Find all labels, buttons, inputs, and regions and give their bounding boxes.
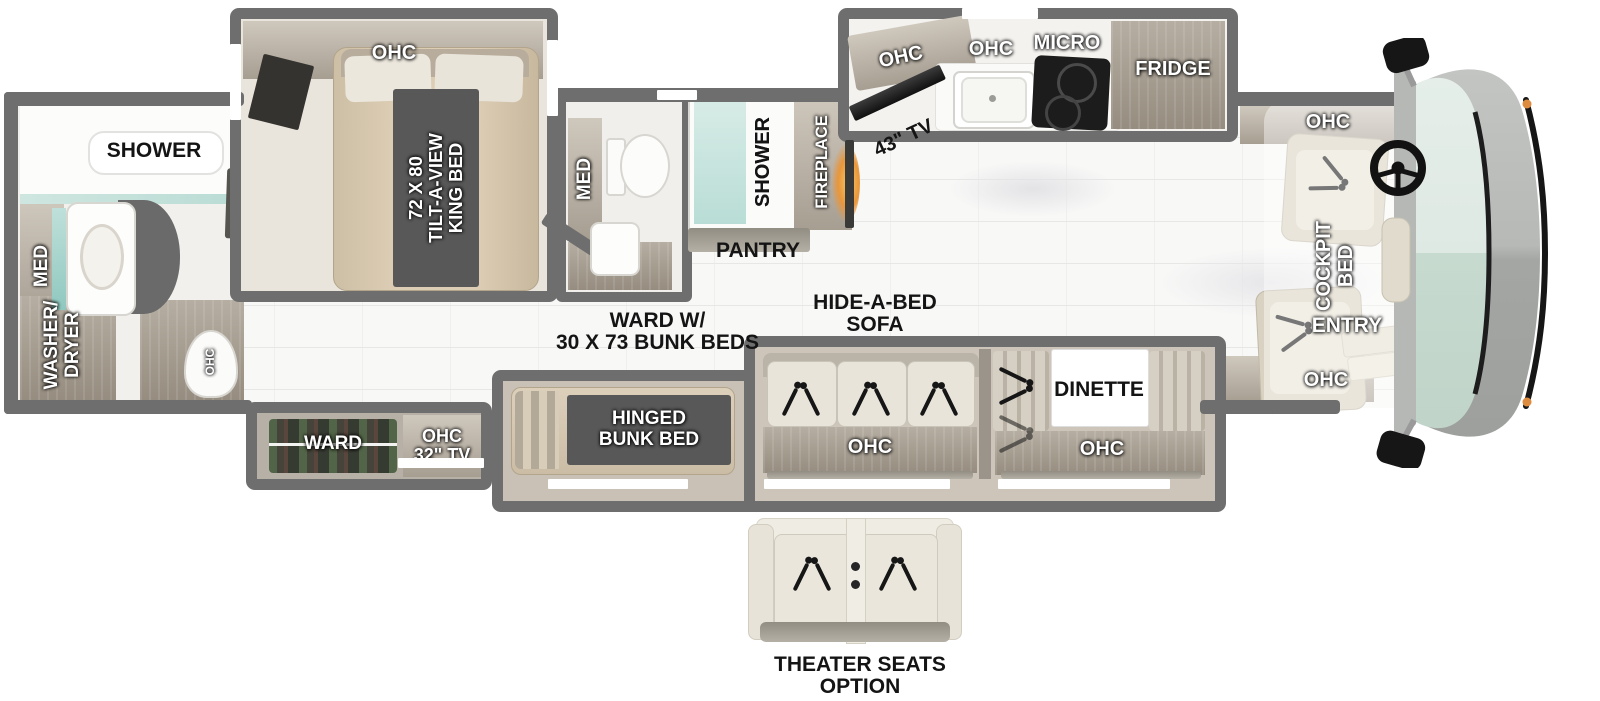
bunk-slideout: HINGED BUNK BED: [492, 370, 768, 512]
bedroom-slideout: OHC 72 X 80 TILT-A-VIEW KING BED: [230, 8, 558, 302]
kitchen-sink-drain: [989, 95, 996, 102]
ward-slideout: WARD OHC 32" TV: [246, 402, 492, 490]
pantry-label: PANTRY: [703, 238, 813, 264]
bunk-slide-window: [548, 479, 688, 489]
slide-divider-post: [979, 349, 991, 479]
kitchen-slideout: OHC OHC MICRO FRIDGE: [838, 8, 1238, 142]
marker-light-bottom: [1523, 398, 1532, 407]
seat-belt-icon: [779, 379, 823, 421]
theater-front-shadow: [760, 622, 950, 642]
sofa-ohc-label: OHC: [839, 435, 901, 461]
rear-shower-label: SHOWER: [88, 133, 220, 169]
theater-seats-label: THEATER SEATS OPTION: [765, 652, 955, 700]
mirror-icon-top: [1380, 38, 1431, 75]
mid-wall-window: [657, 90, 697, 100]
seat-belt-icon: [917, 379, 961, 421]
dinette-chair-right: [1149, 351, 1205, 431]
floorplan-canvas: SHOWER MED WASHER/ DRYER OHC OHC 72 X 80…: [0, 0, 1600, 701]
mid-shower-label-dark: SHOWER: [751, 100, 777, 224]
entry-label: ENTRY: [1306, 313, 1388, 339]
sofa-slide-window: [764, 479, 950, 489]
hinged-bunk-label: HINGED BUNK BED: [573, 405, 725, 455]
kitchen-window: [962, 8, 1038, 19]
theater-cupholder-1: [851, 562, 860, 571]
dinette-label: DINETTE: [1047, 377, 1151, 403]
mid-shower-glass: [694, 102, 746, 224]
fridge-label: FRIDGE: [1131, 57, 1215, 83]
mirror-icon-bottom: [1374, 428, 1427, 468]
kitchen-ohc-center-label: OHC: [959, 37, 1023, 63]
seat-belt-icon: [790, 554, 834, 596]
bedroom-window-left: [230, 44, 241, 120]
bedroom-ohc-label: OHC: [363, 41, 425, 67]
seat-belt-icon: [994, 364, 1036, 408]
washer-dryer-label: WASHER/ DRYER: [40, 284, 86, 406]
theater-cupholder-2: [851, 580, 860, 589]
marker-light-top: [1523, 100, 1532, 109]
hide-a-bed-label: HIDE-A-BED SOFA: [795, 290, 955, 338]
bedroom-window-right: [547, 40, 558, 116]
dash-console: [1382, 218, 1410, 302]
ward-slide-window: [398, 458, 484, 468]
cooktop-burner-2: [1045, 95, 1081, 131]
ward-label: WARD: [289, 431, 377, 457]
sofa-shadow: [767, 471, 973, 479]
seat-belt-icon: [876, 554, 920, 596]
dinette-slide-window: [998, 479, 1170, 489]
top-wall-mid: [552, 88, 844, 102]
mid-sink: [590, 222, 640, 276]
theater-seats-graphic: [748, 514, 962, 650]
dinette-shadow: [1001, 471, 1201, 479]
cockpit-ohc-bottom-label: OHC: [1294, 368, 1358, 394]
fireplace-label: FIREPLACE: [811, 97, 835, 227]
cockpit-ohc-top-label: OHC: [1296, 110, 1360, 136]
king-bed-label: 72 X 80 TILT-A-VIEW KING BED: [405, 98, 467, 278]
bottom-wall-front: [1200, 400, 1340, 414]
bunk-ladder: [515, 391, 559, 469]
top-wall-rear: [4, 92, 244, 106]
rear-sink-basin: [80, 224, 124, 290]
mid-med-label: MED: [573, 143, 597, 215]
kitchen-micro-label: MICRO: [1027, 31, 1107, 57]
mid-toilet: [620, 134, 670, 198]
seat-belt-icon: [849, 379, 893, 421]
fireplace-screen: [845, 140, 854, 228]
ward-bunks-label: WARD W/ 30 X 73 BUNK BEDS: [540, 308, 775, 356]
rear-toilet-ohc-label: OHC: [203, 340, 217, 384]
seat-belt-icon: [994, 412, 1036, 456]
rear-wall: [4, 92, 18, 414]
dinette-ohc-label: OHC: [1071, 437, 1133, 463]
